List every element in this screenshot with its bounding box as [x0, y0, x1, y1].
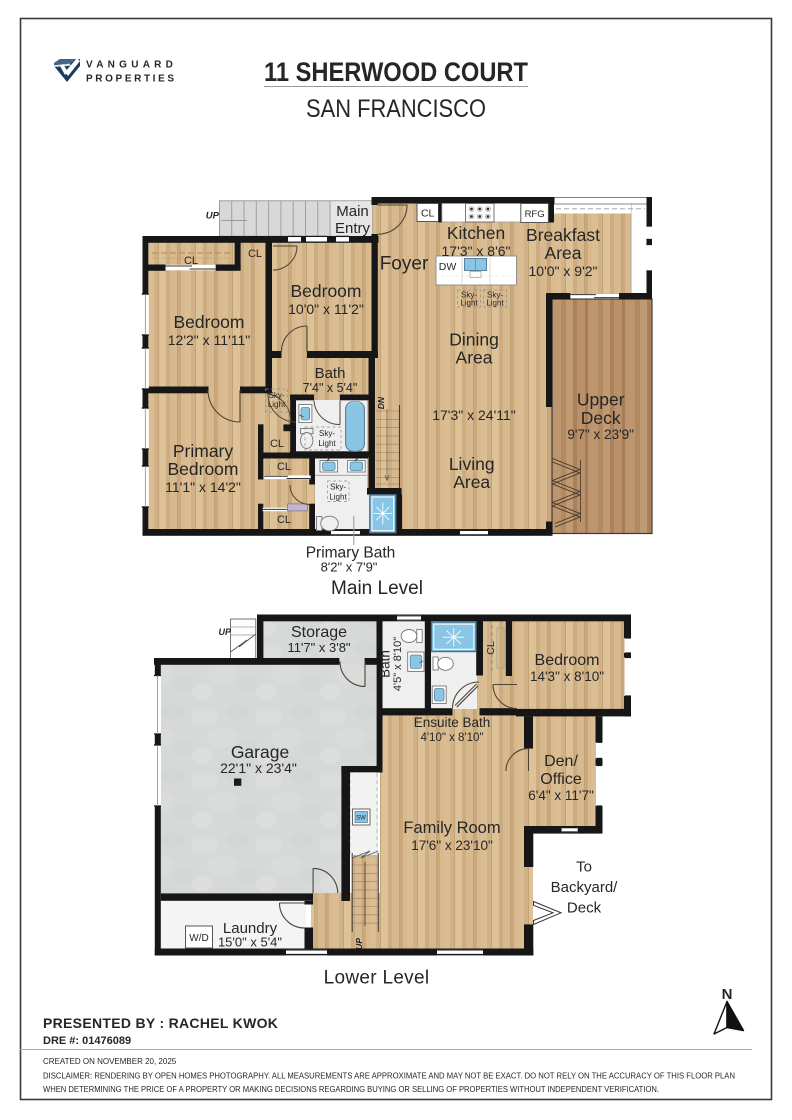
svg-text:CL: CL [485, 641, 497, 655]
svg-text:Bath: Bath [315, 365, 346, 382]
svg-text:10'0" x 9'2": 10'0" x 9'2" [529, 263, 598, 279]
svg-text:Area: Area [545, 243, 582, 263]
svg-text:UP: UP [206, 211, 220, 222]
svg-text:9'7" x 23'9": 9'7" x 23'9" [567, 427, 634, 442]
svg-text:WHEN DETERMINING THE PRICE OF: WHEN DETERMINING THE PRICE OF A PROPERTY… [43, 1085, 659, 1094]
svg-text:Breakfast: Breakfast [526, 225, 600, 245]
svg-text:Sky-: Sky- [269, 391, 285, 400]
svg-text:Sky-: Sky- [319, 429, 335, 438]
svg-text:22'1" x 23'4": 22'1" x 23'4" [220, 760, 297, 776]
svg-text:11'1" x 14'2": 11'1" x 14'2" [165, 479, 241, 495]
svg-text:17'6" x 23'10": 17'6" x 23'10" [411, 838, 493, 853]
svg-text:Area: Area [453, 472, 490, 492]
svg-text:17'3" x 24'11": 17'3" x 24'11" [432, 407, 516, 423]
svg-text:To: To [576, 859, 592, 876]
svg-text:Light: Light [460, 299, 478, 308]
svg-text:Deck: Deck [567, 900, 602, 917]
svg-text:Light: Light [318, 439, 336, 448]
svg-text:Main: Main [336, 203, 369, 220]
svg-text:Entry: Entry [335, 220, 371, 237]
svg-text:7'4" x 5'4": 7'4" x 5'4" [303, 381, 358, 395]
svg-text:Bedroom: Bedroom [173, 312, 244, 332]
svg-text:CREATED ON NOVEMBER 20, 2025: CREATED ON NOVEMBER 20, 2025 [43, 1057, 177, 1066]
svg-text:SAN FRANCISCO: SAN FRANCISCO [306, 95, 486, 123]
svg-text:DISCLAIMER: RENDERING BY OPEN: DISCLAIMER: RENDERING BY OPEN HOMES PHOT… [43, 1072, 735, 1081]
svg-text:Upper: Upper [577, 390, 625, 410]
svg-text:Sky-: Sky- [330, 483, 346, 492]
svg-text:Living: Living [449, 454, 495, 474]
svg-text:10'0" x 11'2": 10'0" x 11'2" [288, 301, 364, 317]
svg-text:UP: UP [354, 938, 364, 950]
svg-text:Area: Area [456, 348, 493, 368]
svg-text:11 SHERWOOD COURT: 11 SHERWOOD COURT [264, 57, 528, 87]
svg-text:8'2" x 7'9": 8'2" x 7'9" [321, 560, 378, 575]
svg-text:Den/: Den/ [544, 753, 578, 770]
svg-text:Dining: Dining [449, 330, 499, 350]
svg-text:RFG: RFG [525, 209, 545, 220]
svg-text:Deck: Deck [581, 408, 621, 428]
svg-text:Ensuite Bath: Ensuite Bath [414, 715, 491, 730]
svg-text:Bedroom: Bedroom [535, 652, 600, 669]
svg-text:4'10" x 8'10": 4'10" x 8'10" [420, 732, 483, 744]
svg-text:14'3" x 8'10": 14'3" x 8'10" [530, 669, 604, 684]
svg-text:Light: Light [486, 299, 504, 308]
svg-text:Primary: Primary [173, 441, 234, 461]
svg-text:Bedroom: Bedroom [290, 281, 361, 301]
svg-text:PROPERTIES: PROPERTIES [86, 74, 176, 85]
svg-text:11'7" x 3'8": 11'7" x 3'8" [287, 640, 350, 655]
svg-text:DRE #: 01476089: DRE #: 01476089 [43, 1035, 131, 1047]
svg-text:UP: UP [218, 627, 231, 637]
svg-text:Storage: Storage [291, 624, 347, 641]
svg-text:N: N [722, 986, 733, 1003]
svg-text:Lower Level: Lower Level [324, 968, 430, 989]
svg-text:CL: CL [248, 248, 262, 260]
svg-text:CL: CL [277, 461, 291, 473]
svg-text:Main Level: Main Level [331, 578, 423, 599]
svg-text:Bedroom: Bedroom [167, 459, 238, 479]
svg-text:PRESENTED BY : RACHEL KWOK: PRESENTED BY : RACHEL KWOK [43, 1015, 278, 1031]
svg-text:Office: Office [540, 771, 582, 788]
svg-text:SW: SW [356, 816, 366, 822]
svg-text:6'4" x 11'7": 6'4" x 11'7" [528, 788, 594, 803]
svg-text:Foyer: Foyer [380, 254, 429, 275]
svg-text:CL: CL [184, 255, 198, 267]
svg-text:Family Room: Family Room [403, 819, 500, 837]
svg-text:CL: CL [277, 514, 291, 526]
svg-text:Light: Light [329, 493, 347, 502]
svg-text:Kitchen: Kitchen [447, 223, 505, 243]
svg-text:4'5" x 8'10": 4'5" x 8'10" [392, 637, 404, 691]
svg-text:15'0" x 5'4": 15'0" x 5'4" [218, 935, 282, 950]
svg-text:VANGUARD: VANGUARD [86, 60, 176, 71]
svg-text:17'3" x 8'6": 17'3" x 8'6" [442, 243, 511, 259]
svg-text:W/D: W/D [189, 933, 208, 944]
svg-text:DN: DN [376, 396, 386, 409]
svg-text:CL: CL [421, 208, 435, 220]
svg-text:DW: DW [439, 261, 457, 273]
svg-text:Light: Light [268, 400, 286, 409]
svg-text:CL: CL [270, 438, 284, 450]
svg-text:12'2" x 11'11": 12'2" x 11'11" [168, 332, 251, 348]
svg-text:Bath: Bath [378, 650, 393, 678]
svg-text:Garage: Garage [231, 742, 289, 762]
svg-text:Backyard/: Backyard/ [551, 879, 619, 896]
